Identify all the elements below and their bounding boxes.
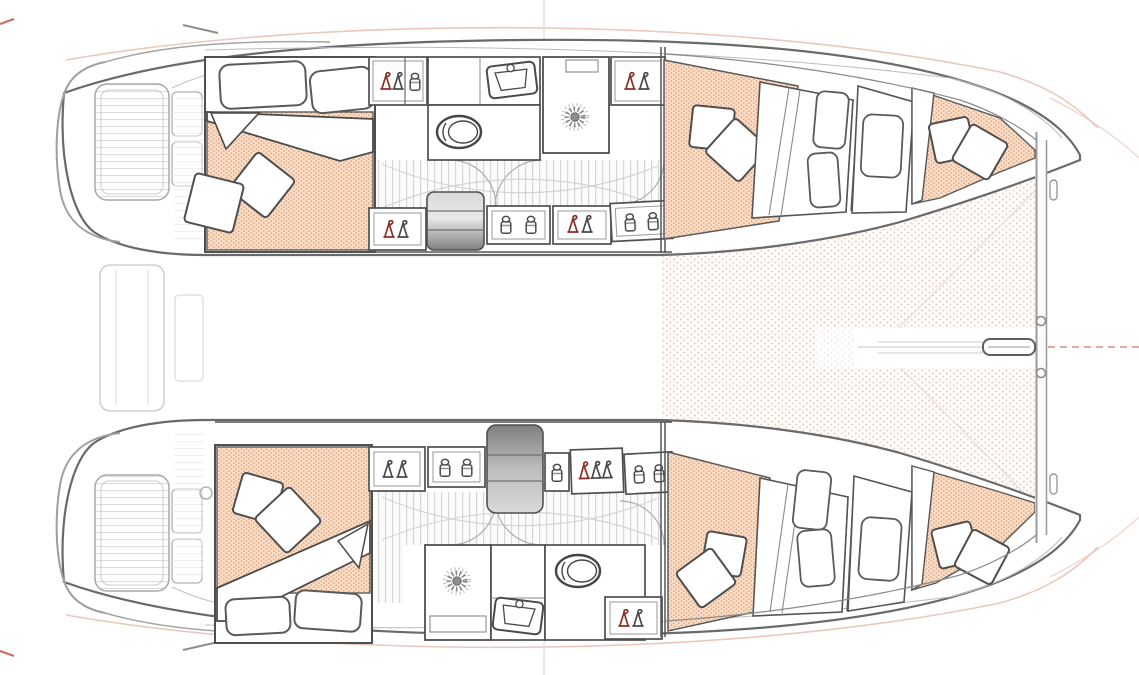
- toilet-icon: [437, 116, 481, 148]
- margin-tick-top: [0, 19, 14, 24]
- pillow: [860, 114, 903, 178]
- starboard-companionway-steps: [487, 425, 543, 513]
- chainplate: [1050, 474, 1057, 494]
- crossbeam-fitting: [1037, 369, 1046, 378]
- port-forward-single-berth: [852, 86, 914, 213]
- pillow: [294, 590, 362, 633]
- toilet-icon: [556, 555, 600, 587]
- port-wardrobe-inner-aft: [369, 208, 426, 250]
- starboard-deck-planks: [174, 431, 204, 577]
- jar-icon: [440, 459, 450, 476]
- sink-icon: [486, 61, 538, 99]
- cushion: [184, 173, 245, 234]
- sink-icon: [492, 597, 544, 635]
- steps: [427, 192, 484, 250]
- jar-icon: [526, 216, 536, 233]
- port-swim-platform: [95, 84, 169, 200]
- port-shower-room: [543, 57, 609, 153]
- starboard-wardrobe-inner-aft: [369, 447, 425, 491]
- margin-tick-bottom: [0, 651, 14, 656]
- pillow: [792, 469, 832, 530]
- aft-crossbar: [100, 265, 164, 411]
- floor-plan-canvas: [0, 0, 1139, 675]
- pillow: [858, 517, 902, 582]
- starboard-wardrobe-inner-mid: [570, 448, 624, 494]
- starboard-storage-locker-2: [545, 453, 569, 491]
- jar-icon: [410, 73, 420, 90]
- port-toilet-room: [428, 105, 540, 160]
- jar-icon: [625, 214, 635, 231]
- catamaran-floor-plan: [0, 0, 1139, 675]
- crossbeam-fitting: [1037, 317, 1046, 326]
- steps: [487, 425, 543, 513]
- chainplate: [1050, 180, 1057, 200]
- pillow: [807, 152, 841, 208]
- starboard-storage-locker-1: [428, 447, 485, 487]
- starboard-shower-room: [425, 545, 491, 640]
- aft-crossbar-lines: [116, 270, 148, 405]
- port-wardrobe-inner-mid: [553, 206, 611, 244]
- pillow: [797, 529, 836, 588]
- port-galley-unit: [428, 57, 540, 105]
- pillow: [225, 596, 291, 635]
- starboard-aft-cabin: [215, 445, 372, 643]
- port-companionway-steps: [427, 192, 484, 250]
- starboard-wardrobe-forward: [605, 597, 662, 639]
- jar-icon: [552, 464, 562, 481]
- port-wardrobe-aft: [369, 57, 427, 105]
- starboard-forward-single-berth: [848, 476, 912, 611]
- port-storage-locker-1: [487, 206, 550, 244]
- starboard-entry-floor: [376, 545, 404, 603]
- pillow: [309, 66, 375, 114]
- starboard-swim-platform: [95, 475, 169, 591]
- cockpit-locker: [175, 295, 203, 381]
- port-wardrobe-forward: [611, 57, 665, 105]
- shower-bench: [430, 616, 486, 632]
- pillow: [813, 91, 850, 150]
- anchor-channel-fade: [815, 328, 857, 368]
- jar-icon: [501, 216, 511, 233]
- jar-icon: [462, 459, 472, 476]
- jar-icon: [654, 465, 664, 482]
- jar-icon: [634, 466, 644, 483]
- jar-icon: [648, 213, 658, 230]
- starboard-davit-line: [183, 642, 218, 650]
- starboard-vanity: [491, 545, 545, 640]
- starboard-storage-locker-3: [624, 452, 674, 494]
- port-davit-line: [183, 25, 218, 33]
- shower-shelf: [566, 60, 598, 72]
- port-aft-cabin: [184, 57, 375, 252]
- pillow: [219, 61, 307, 109]
